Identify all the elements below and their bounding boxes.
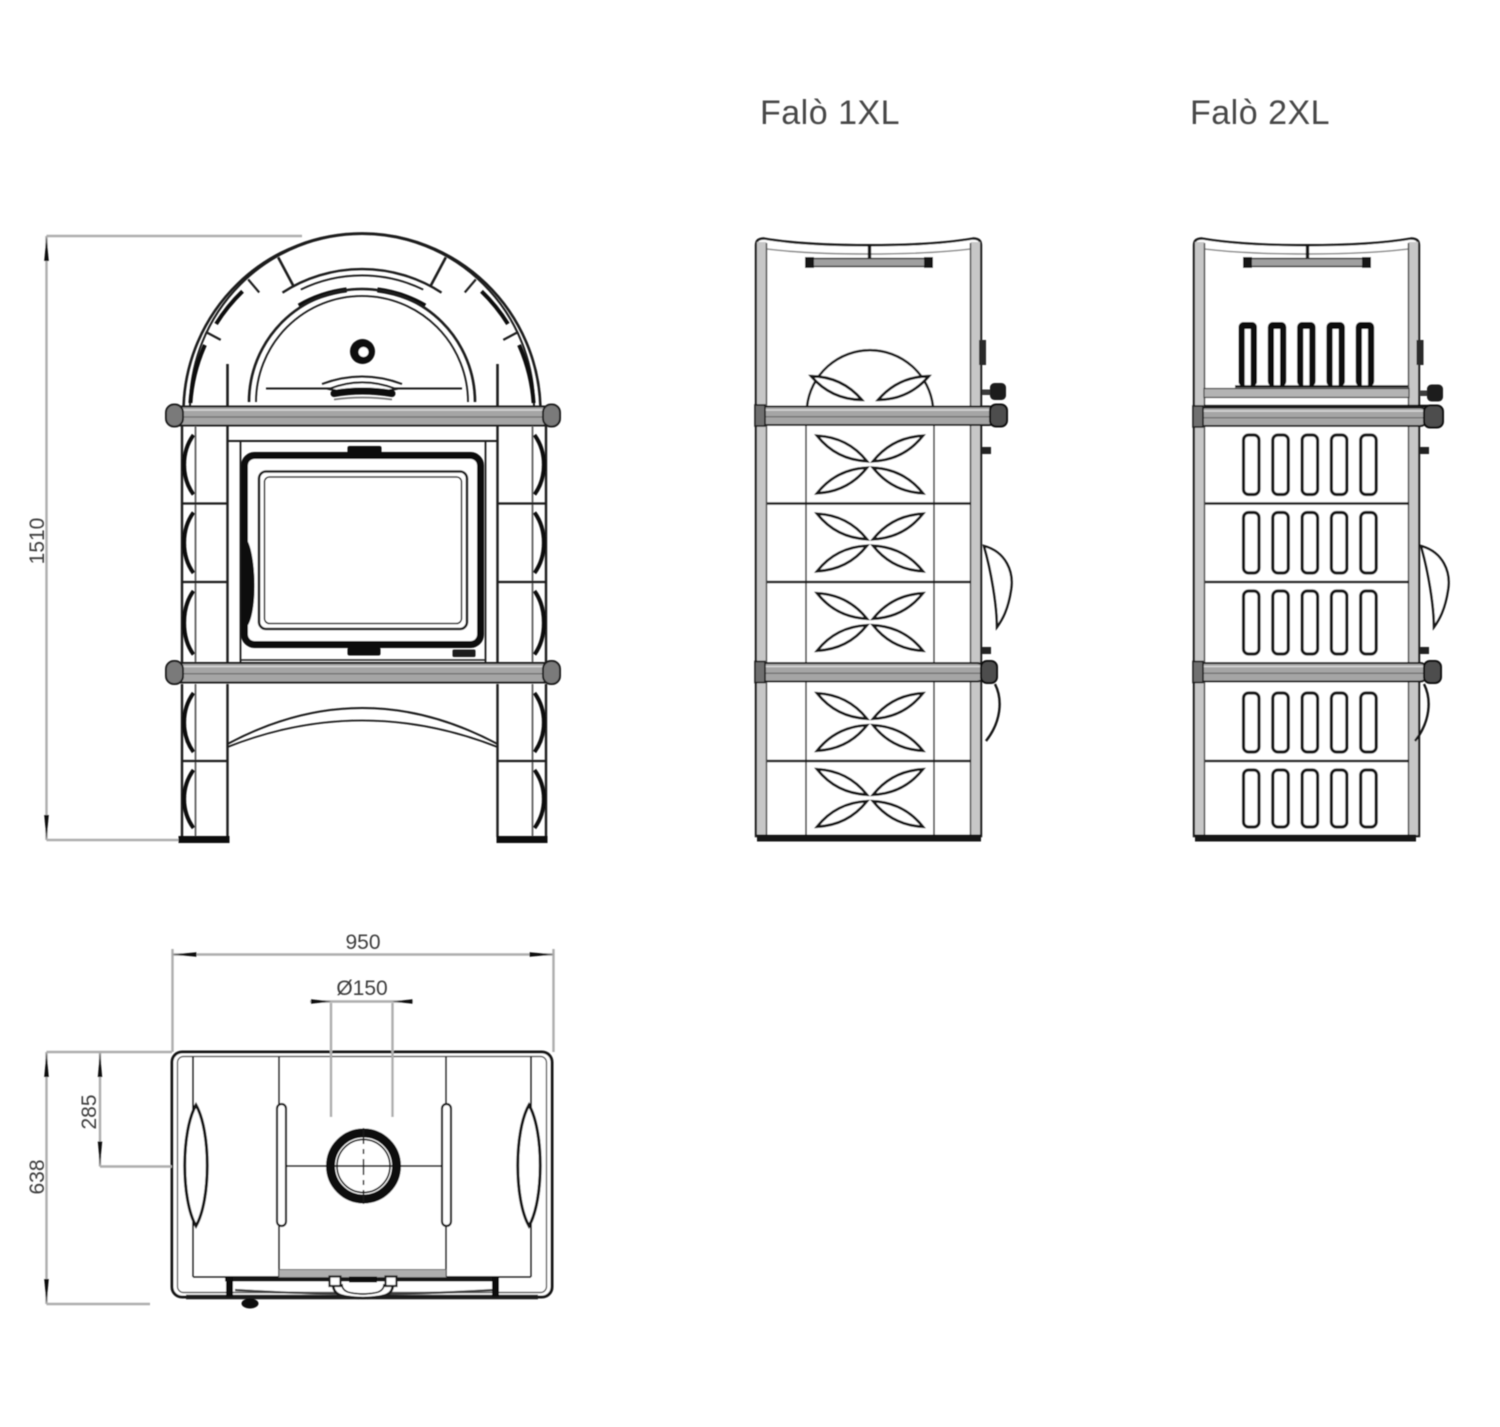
svg-text:Falò 1XL: Falò 1XL — [760, 94, 900, 132]
svg-text:638: 638 — [26, 1159, 49, 1194]
svg-text:1510: 1510 — [26, 518, 49, 565]
svg-text:Ø150: Ø150 — [336, 977, 387, 1000]
svg-text:950: 950 — [345, 931, 380, 954]
svg-text:Falò 2XL: Falò 2XL — [1190, 94, 1330, 132]
svg-text:285: 285 — [78, 1094, 101, 1129]
